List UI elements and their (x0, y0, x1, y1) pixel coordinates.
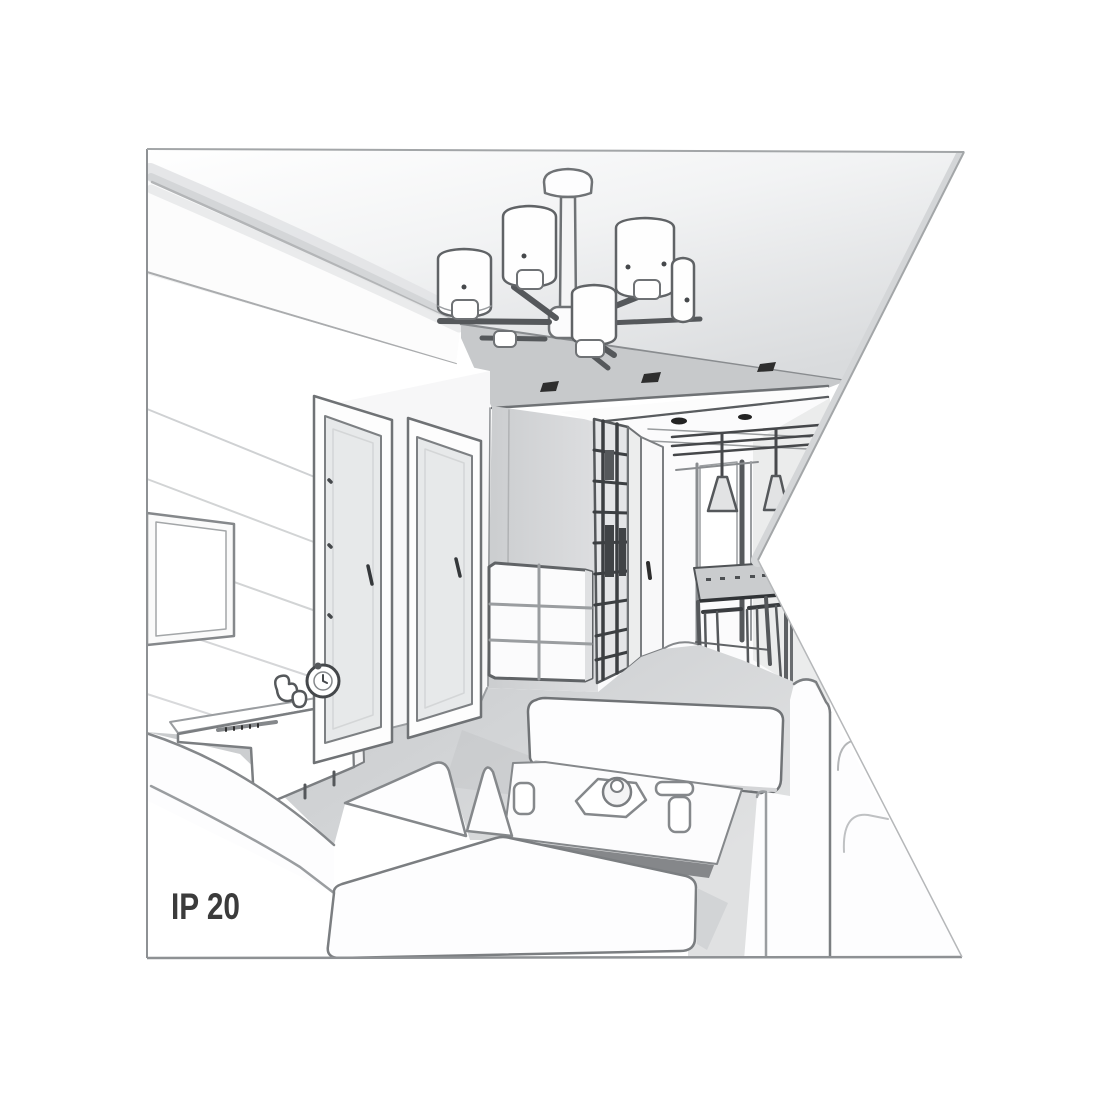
svg-text:IP 20: IP 20 (171, 886, 240, 927)
